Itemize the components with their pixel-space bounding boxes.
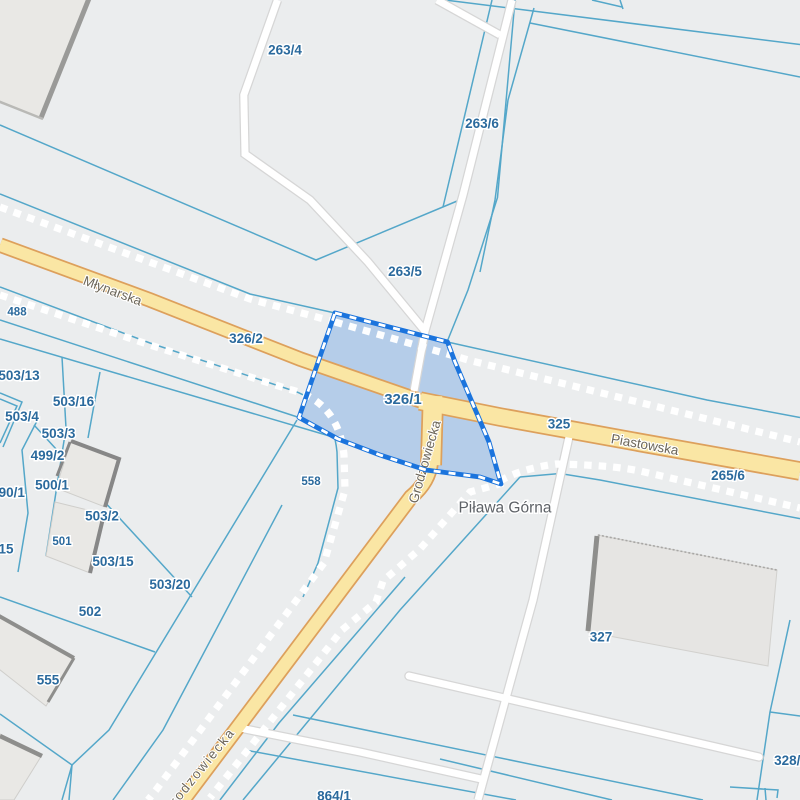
svg-text:864/1: 864/1 — [317, 789, 351, 800]
svg-text:503/15: 503/15 — [92, 554, 134, 569]
svg-text:503/3: 503/3 — [42, 426, 76, 441]
svg-text:503/4: 503/4 — [5, 409, 39, 424]
svg-text:326/1: 326/1 — [384, 391, 422, 408]
svg-text:503/2: 503/2 — [85, 509, 119, 524]
svg-text:502: 502 — [79, 604, 102, 619]
svg-text:500/1: 500/1 — [35, 478, 69, 493]
svg-text:499/2: 499/2 — [31, 448, 65, 463]
svg-text:325: 325 — [548, 417, 571, 432]
svg-text:327: 327 — [590, 630, 613, 645]
svg-text:488: 488 — [7, 307, 27, 319]
svg-text:Piława Górna: Piława Górna — [458, 500, 551, 517]
svg-text:15: 15 — [0, 542, 14, 557]
svg-text:503/20: 503/20 — [149, 577, 190, 592]
svg-text:326/2: 326/2 — [229, 331, 263, 346]
svg-text:490/1: 490/1 — [0, 485, 25, 500]
svg-text:503/16: 503/16 — [53, 394, 95, 409]
svg-text:265/6: 265/6 — [711, 468, 745, 483]
svg-text:558: 558 — [301, 476, 321, 488]
svg-text:263/5: 263/5 — [388, 264, 422, 279]
svg-text:555: 555 — [37, 673, 60, 688]
svg-text:263/4: 263/4 — [268, 43, 302, 58]
svg-text:503/13: 503/13 — [0, 368, 40, 383]
svg-text:328/4: 328/4 — [774, 753, 800, 768]
svg-text:263/6: 263/6 — [465, 116, 499, 131]
svg-text:501: 501 — [52, 536, 72, 548]
